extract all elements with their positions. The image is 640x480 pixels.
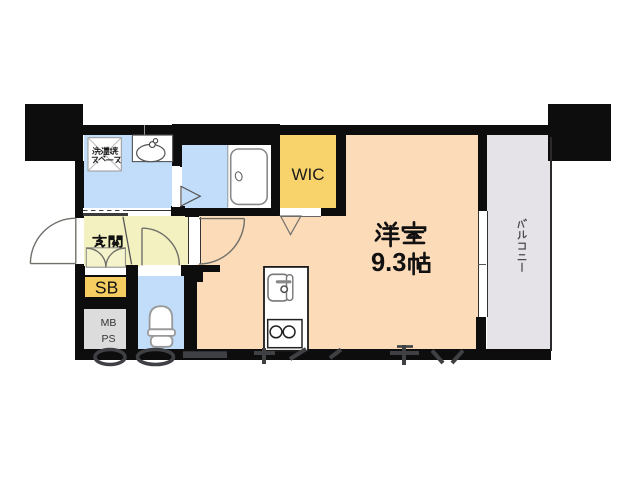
svg-text:PS: PS [101,333,115,345]
svg-text:9.3: 9.3 [371,249,406,277]
svg-text:SB: SB [95,278,118,298]
svg-text:WIC: WIC [291,165,324,184]
svg-text:MB: MB [101,317,117,329]
